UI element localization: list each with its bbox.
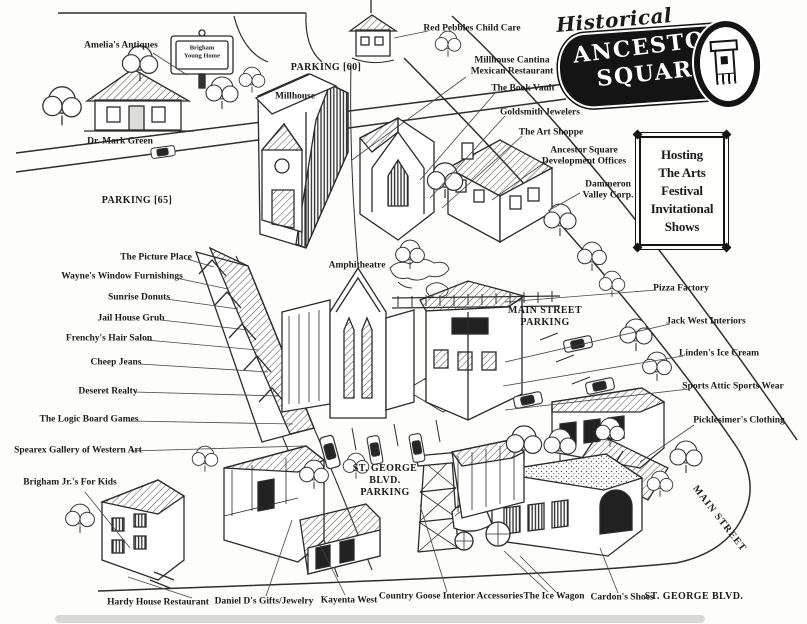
label-sunrise-donuts: Sunrise Donuts <box>108 292 170 303</box>
label-spearex-gallery: Spearex Gallery of Western Art <box>14 445 142 456</box>
label-picklesimers: Picklesimer's Clothing <box>693 415 785 426</box>
building-amelias-antiques <box>84 69 194 131</box>
label-line: Dammeron <box>583 180 634 191</box>
label-hardy-house: Hardy House Restaurant <box>107 597 209 608</box>
label-line: Valley Corp. <box>583 191 634 202</box>
arts-festival-notice: Hosting The Arts Festival Invitational S… <box>635 132 729 250</box>
label-sports-attic: Sports Attic Sports Wear <box>682 381 783 392</box>
label-waynes-window: Wayne's Window Furnishings <box>61 271 183 282</box>
label-line: Mexican Restaurant <box>471 67 554 78</box>
label-main-street-parking: MAIN STREET PARKING <box>508 305 582 329</box>
label-pizza-factory: Pizza Factory <box>653 283 709 294</box>
label-ice-wagon: The Ice Wagon <box>523 591 584 602</box>
label-line: ST. GEORGE <box>353 463 417 475</box>
label-line: Millhouse Cantina <box>471 56 554 67</box>
ancestor-square-logo: ANCESTOR SQUARE <box>558 23 755 108</box>
label-lindens: Linden's Ice Cream <box>679 348 759 359</box>
sign-line2: Young Home <box>184 53 220 61</box>
label-picture-place: The Picture Place <box>120 252 192 263</box>
notice-line: Hosting <box>641 146 723 164</box>
label-millhouse: Millhouse <box>275 91 315 102</box>
notice-line: Festival <box>641 182 723 200</box>
label-dr-mark-green: Dr. Mark Green <box>87 136 153 147</box>
scan-edge-artifact <box>55 615 705 623</box>
label-art-shoppe: The Art Shoppe <box>519 127 583 138</box>
label-brigham-jrs: Brigham Jr.'s For Kids <box>23 477 116 488</box>
label-daniel-ds: Daniel D's Gifts/Jewelry <box>215 596 314 607</box>
label-parking-60: PARKING [60] <box>291 62 361 74</box>
label-line: Ancestor Square <box>542 146 626 157</box>
sign-line1: Brigham <box>184 45 220 53</box>
label-jail-house-grub: Jail House Grub <box>97 313 164 324</box>
notice-text: Hosting The Arts Festival Invitational S… <box>639 136 725 246</box>
label-deseret-realty: Deseret Realty <box>78 386 137 397</box>
label-dammeron-valley: Dammeron Valley Corp. <box>583 180 634 203</box>
label-book-vault: The Book Vault <box>491 83 554 94</box>
ancestor-square-map: Amelia's Antiques Brigham Young Home PAR… <box>0 0 807 624</box>
label-amelias-antiques: Amelia's Antiques <box>84 40 158 51</box>
tower-window <box>720 56 728 64</box>
label-amphitheatre: Amphitheatre <box>329 260 386 271</box>
building-central-chapel <box>282 268 414 418</box>
label-red-pebbles: Red Pebbles Child Care <box>423 23 520 34</box>
label-millhouse-cantina: Millhouse Cantina Mexican Restaurant <box>471 56 554 79</box>
label-parking-65: PARKING [65] <box>102 195 172 207</box>
notice-line: Invitational <box>641 200 723 218</box>
label-line: Development Offices <box>542 157 626 168</box>
building-red-pebbles <box>350 0 396 63</box>
label-goldsmith-jewelers: Goldsmith Jewelers <box>500 107 580 118</box>
label-st-george-blvd: ST. GEORGE BLVD. <box>645 591 744 603</box>
label-line: MAIN STREET <box>508 305 582 317</box>
brigham-young-home-sign-label: Brigham Young Home <box>184 45 220 62</box>
label-frenchys: Frenchy's Hair Salon <box>66 333 152 344</box>
label-cheep-jeans: Cheep Jeans <box>91 357 142 368</box>
label-jack-west: Jack West Interiors <box>666 316 746 327</box>
building-brigham-jrs <box>102 480 184 588</box>
label-country-goose: Country Goose Interior Accessories <box>379 591 523 602</box>
label-development-offices: Ancestor Square Development Offices <box>542 146 626 169</box>
tower-legs <box>716 73 737 84</box>
label-line: PARKING <box>508 317 582 329</box>
label-kayenta-west: Kayenta West <box>321 595 378 606</box>
notice-line: Shows <box>641 218 723 236</box>
label-st-george-parking: ST. GEORGE BLVD. PARKING <box>353 463 417 499</box>
label-line: PARKING <box>353 487 417 499</box>
label-line: BLVD. <box>353 475 417 487</box>
label-logic-board-games: The Logic Board Games <box>40 414 139 425</box>
building-book-vault-chapel <box>360 118 434 240</box>
notice-line: The Arts <box>641 164 723 182</box>
